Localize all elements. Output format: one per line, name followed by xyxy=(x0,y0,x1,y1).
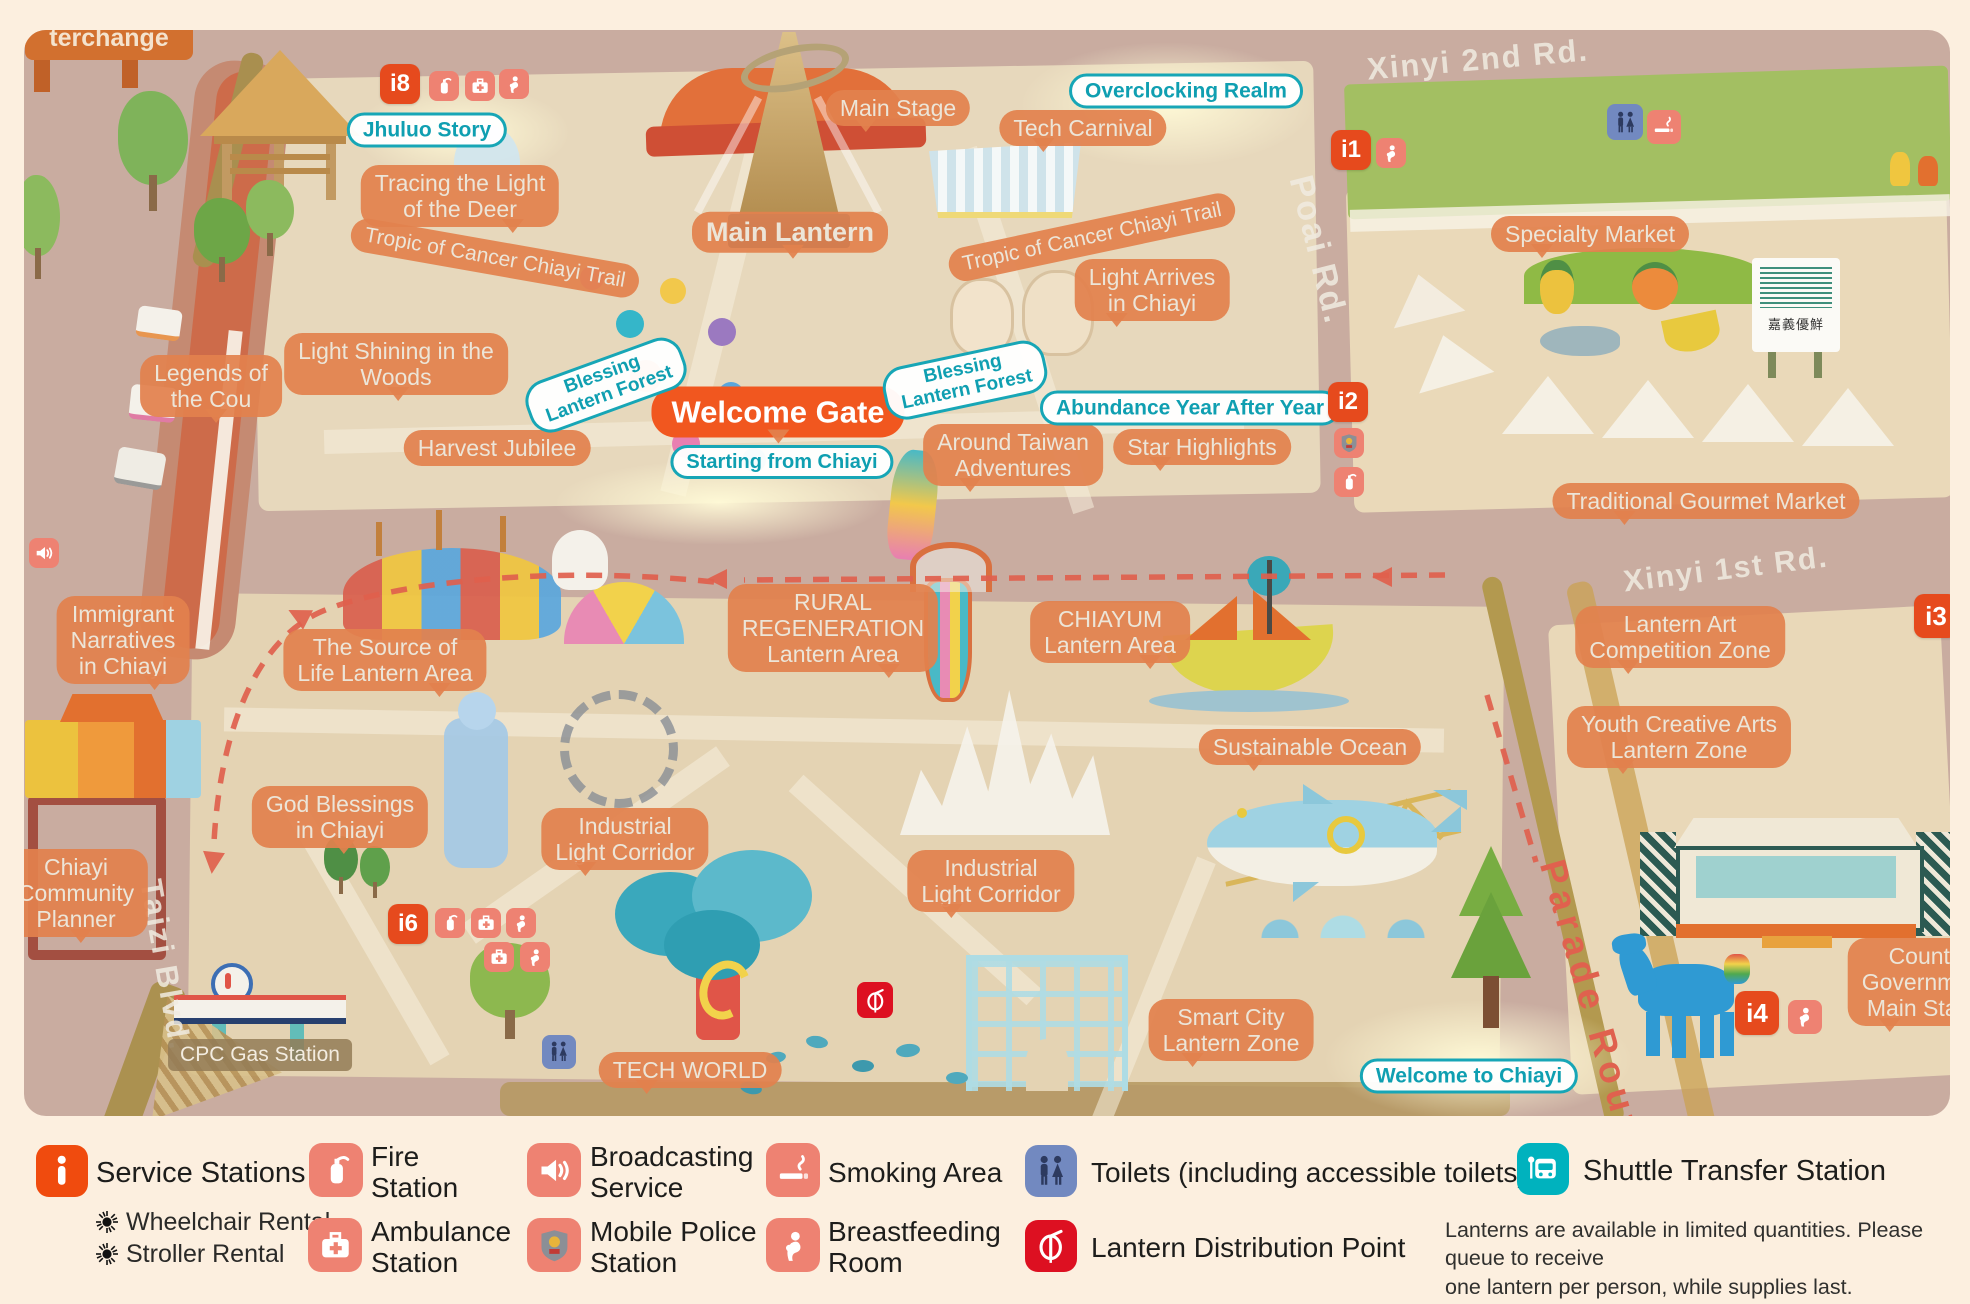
label-lantern-art: Lantern Art Competition Zone xyxy=(1575,606,1785,668)
fire-extinguisher-icon xyxy=(435,908,465,938)
toilets-icon xyxy=(1607,104,1643,140)
label-tracing-light-deer: Tracing the Light of the Deer xyxy=(361,165,559,227)
label-abundance-year: Abundance Year After Year xyxy=(1040,390,1340,425)
label-industrial-corridor-a: Industrial Light Corridor xyxy=(541,808,708,870)
legend-stroller-rental: Stroller Rental xyxy=(126,1240,284,1269)
smoking-area-icon xyxy=(1647,110,1681,144)
festival-map: terchange xyxy=(24,30,1950,1116)
label-gourmet-market: Traditional Gourmet Market xyxy=(1552,483,1859,519)
ambulance-icon xyxy=(471,908,501,938)
legend-breastfeeding-room: Breastfeeding Room xyxy=(828,1217,1001,1279)
mobile-police-icon xyxy=(1334,428,1364,458)
label-main-stage: Main Stage xyxy=(826,90,970,126)
label-cpc-station: CPC Gas Station xyxy=(168,1039,352,1071)
legend-wheelchair-rental: Wheelchair Rental xyxy=(126,1208,330,1237)
ambulance-icon xyxy=(484,942,514,972)
label-welcome-gate: Welcome Gate xyxy=(651,386,904,437)
label-community-planner: Chiayi Community Planner xyxy=(24,849,148,937)
label-overclocking-realm: Overclocking Realm xyxy=(1069,73,1303,108)
label-tech-world: TECH WORLD xyxy=(599,1052,782,1088)
service-station-i6: i6 xyxy=(388,904,428,944)
service-stations-icon xyxy=(36,1145,88,1197)
label-youth-creative: Youth Creative Arts Lantern Zone xyxy=(1567,706,1791,768)
label-jhuluo-story: Jhuluo Story xyxy=(347,112,507,147)
label-specialty-market: Specialty Market xyxy=(1491,216,1689,252)
breastfeeding-room-icon xyxy=(766,1218,820,1272)
label-rural-regeneration: RURAL REGENERATION Lantern Area xyxy=(728,584,938,672)
broadcasting-service-icon xyxy=(527,1143,581,1197)
label-source-of-life: The Source of Life Lantern Area xyxy=(283,629,486,691)
breastfeeding-icon xyxy=(506,908,536,938)
label-sustainable-ocean: Sustainable Ocean xyxy=(1199,729,1421,765)
cpc-station-text: CPC Gas Station xyxy=(180,1043,340,1066)
legend-lantern-distribution: Lantern Distribution Point xyxy=(1091,1233,1405,1264)
fire-station-icon xyxy=(309,1143,363,1197)
toilets-icon xyxy=(542,1035,576,1069)
mobile-police-icon xyxy=(527,1218,581,1272)
label-industrial-corridor-b: Industrial Light Corridor xyxy=(907,850,1074,912)
ambulance-icon xyxy=(465,71,495,101)
smoking-area-icon xyxy=(766,1143,820,1197)
breastfeeding-icon xyxy=(499,69,529,99)
broadcasting-icon xyxy=(29,538,59,568)
wheelchair-rental-icon xyxy=(95,1210,119,1234)
toilets-icon xyxy=(1025,1145,1077,1197)
label-tech-carnival: Tech Carnival xyxy=(999,110,1166,146)
legend-service-stations: Service Stations xyxy=(96,1158,306,1190)
ambulance-station-icon xyxy=(308,1218,362,1272)
parade-route-dashes xyxy=(24,30,1950,1116)
label-god-blessings: God Blessings in Chiayi xyxy=(252,786,428,848)
legend-toilets: Toilets (including accessible toilets) xyxy=(1091,1158,1527,1189)
service-station-i8: i8 xyxy=(380,64,420,104)
label-light-arrives: Light Arrives in Chiayi xyxy=(1075,259,1230,321)
label-light-shining-woods: Light Shining in the Woods xyxy=(284,333,508,395)
breastfeeding-icon xyxy=(1376,138,1406,168)
legend-lantern-note: Lanterns are available in limited quanti… xyxy=(1445,1216,1955,1301)
fire-extinguisher-icon xyxy=(429,71,459,101)
label-welcome-to-chiayi: Welcome to Chiayi xyxy=(1360,1058,1578,1093)
label-county-stage: County Government Main Stage xyxy=(1848,938,1950,1026)
legend-broadcasting-service: Broadcasting Service xyxy=(590,1142,753,1204)
fire-extinguisher-icon xyxy=(1334,467,1364,497)
legend-shuttle-transfer: Shuttle Transfer Station xyxy=(1583,1156,1886,1188)
label-star-highlights: Star Highlights xyxy=(1113,429,1291,465)
service-station-i3: i3 xyxy=(1914,594,1950,638)
label-immigrant-narratives: Immigrant Narratives in Chiayi xyxy=(57,596,190,684)
breastfeeding-icon xyxy=(520,942,550,972)
label-chiayum-area: CHIAYUM Lantern Area xyxy=(1030,601,1190,663)
breastfeeding-icon xyxy=(1788,1000,1822,1034)
stroller-rental-icon xyxy=(95,1242,119,1266)
service-station-i2: i2 xyxy=(1328,382,1368,422)
legend-fire-station: Fire Station xyxy=(371,1142,458,1204)
label-harvest-jubilee: Harvest Jubilee xyxy=(404,430,591,466)
service-station-i1: i1 xyxy=(1331,130,1371,170)
festival-map-page: terchange xyxy=(0,0,1970,1304)
legend-smoking-area: Smoking Area xyxy=(828,1158,1002,1189)
lantern-distribution-icon xyxy=(1025,1220,1077,1272)
label-starting-chiayi: Starting from Chiayi xyxy=(670,445,893,479)
service-station-i4: i4 xyxy=(1735,991,1779,1035)
legend-ambulance-station: Ambulance Station xyxy=(371,1217,511,1279)
shuttle-transfer-icon xyxy=(1517,1143,1569,1195)
lantern-distribution-icon xyxy=(857,982,893,1018)
label-legends-cou: Legends of the Cou xyxy=(140,355,282,417)
legend-mobile-police: Mobile Police Station xyxy=(590,1217,757,1279)
label-around-taiwan: Around Taiwan Adventures xyxy=(923,424,1103,486)
label-main-lantern: Main Lantern xyxy=(692,212,888,253)
label-smart-city: Smart City Lantern Zone xyxy=(1149,999,1314,1061)
